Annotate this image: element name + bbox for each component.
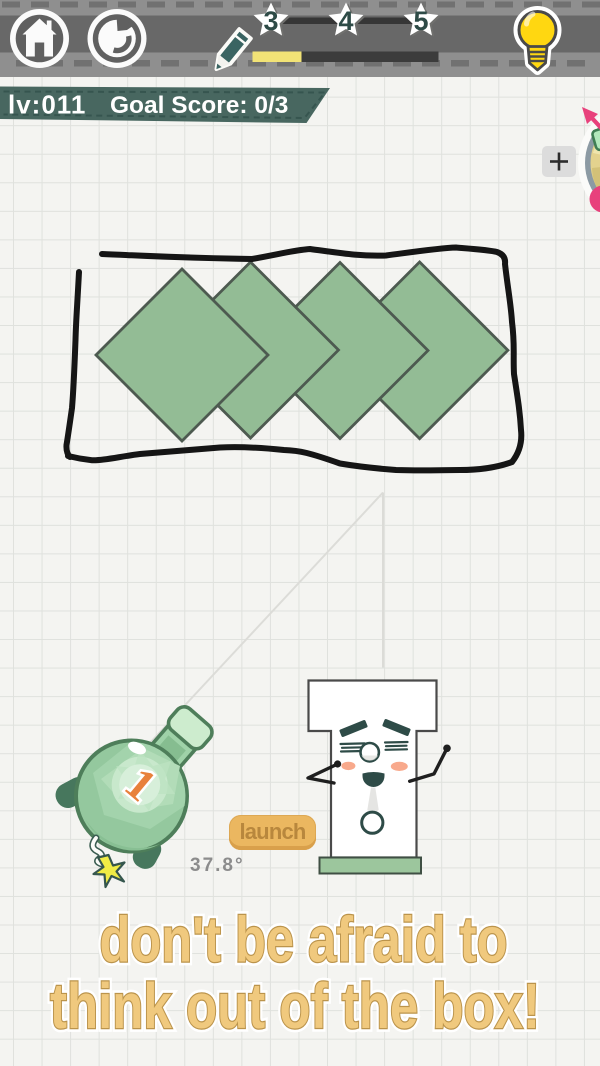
- svg-text:don't be afraid to: don't be afraid to: [99, 905, 507, 976]
- svg-text:3: 3: [263, 6, 278, 36]
- svg-text:Goal Score: 0/3: Goal Score: 0/3: [110, 92, 288, 119]
- svg-text:5: 5: [413, 6, 428, 36]
- svg-text:4: 4: [338, 6, 353, 36]
- svg-text:lv:011: lv:011: [8, 90, 86, 120]
- svg-text:think out of the box!: think out of the box!: [50, 972, 540, 1043]
